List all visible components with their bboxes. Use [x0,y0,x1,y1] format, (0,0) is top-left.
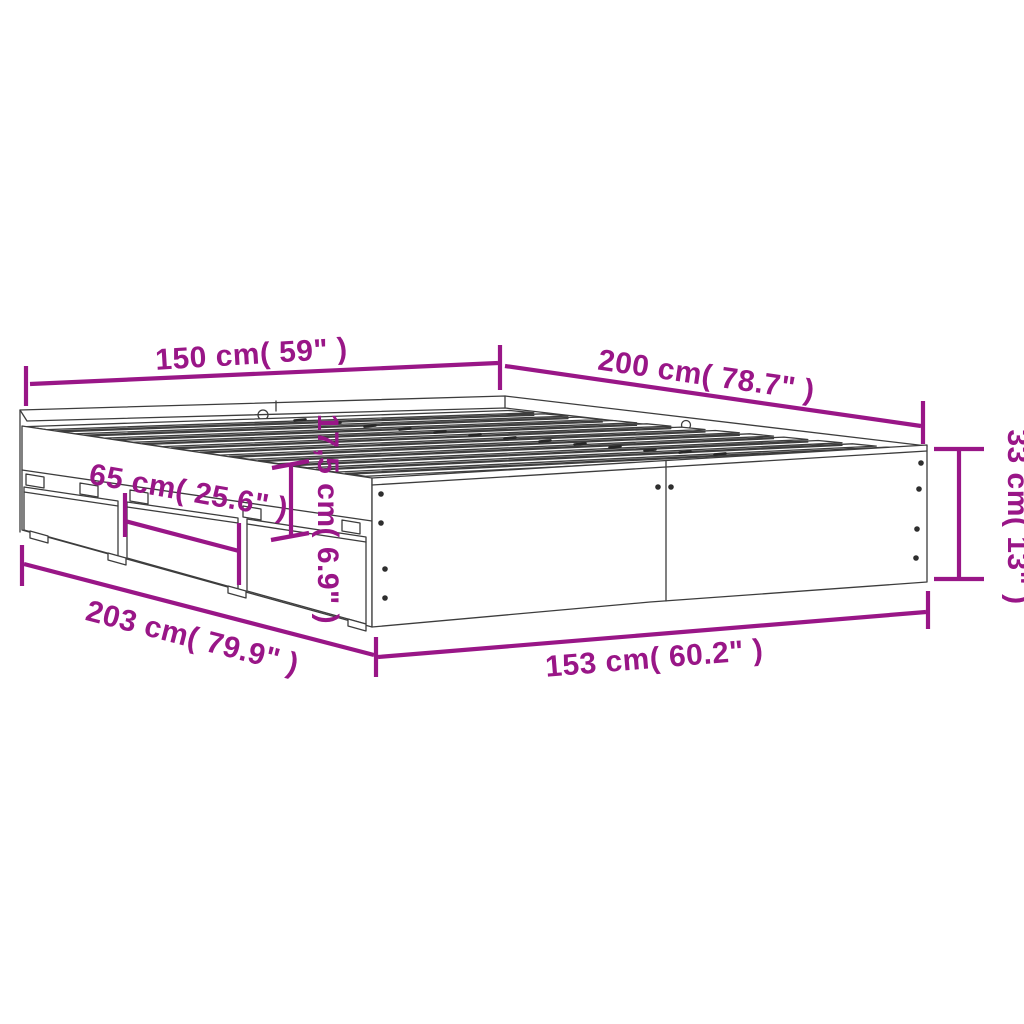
dim-drawer-height-label: 17,5 cm( 6.9" ) [311,414,344,624]
bed-dimension-diagram: 150 cm( 59" ) 200 cm( 78.7" ) 33 cm( 13"… [0,0,1024,1024]
dim-side-length-label: 200 cm( 78.7" ) [596,344,817,408]
screw-hole-dot [382,566,388,572]
screw-hole-dot [378,491,384,497]
screw-hole-dot [668,484,674,490]
diagram-canvas: 150 cm( 59" ) 200 cm( 78.7" ) 33 cm( 13"… [0,0,1024,1024]
screw-hole-dot [378,520,384,526]
dim-frame-height: 33 cm( 13" ) [934,429,1024,604]
dim-frame-height-label: 33 cm( 13" ) [1001,429,1024,604]
dim-head-width: 150 cm( 59" ) [26,332,500,406]
screw-hole-dot [655,484,661,490]
screw-hole-dot [916,486,922,492]
screw-hole-dot [918,460,924,466]
bed-drawing [20,396,927,631]
screw-hole-dot [382,595,388,601]
screw-hole-dot [914,526,920,532]
screw-hole-dot [913,555,919,561]
